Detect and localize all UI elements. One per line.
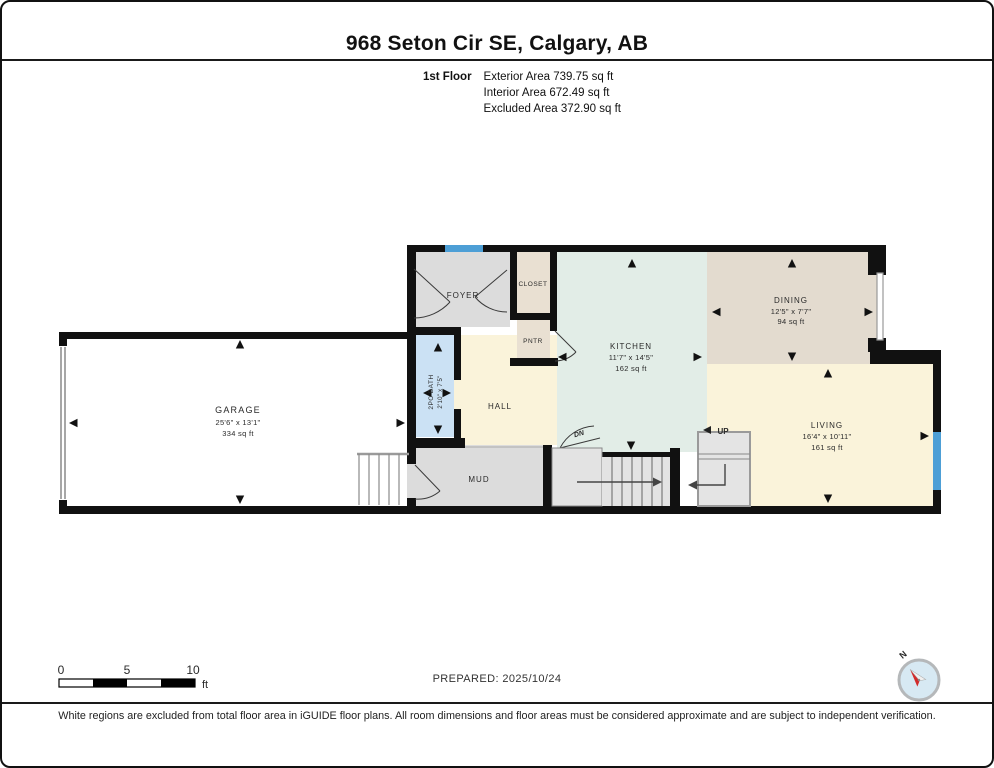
window-living <box>933 432 941 490</box>
floorplan-page: 968 Seton Cir SE, Calgary, AB 1st Floor … <box>0 0 994 768</box>
patio-door <box>877 273 883 340</box>
disclaimer-text: White regions are excluded from total fl… <box>2 710 992 722</box>
bath-door-opening <box>454 380 461 409</box>
room-living-label: LIVING <box>811 421 843 430</box>
room-kitchen-dims: 11'7" x 14'5" <box>609 353 654 362</box>
room-kitchen-label: KITCHEN <box>610 342 652 351</box>
prepared-date: PREPARED: 2025/10/24 <box>2 673 992 685</box>
floorplan-canvas: DN UP <box>2 2 994 768</box>
room-bath-dims: 2'10" x 7'5" <box>438 375 444 408</box>
compass-north-label: N <box>897 649 908 661</box>
room-foyer-label: FOYER <box>447 291 480 300</box>
garage-door <box>59 346 67 500</box>
room-kitchen-area: 162 sq ft <box>615 364 647 373</box>
window-foyer <box>445 245 483 252</box>
room-living-dims: 16'4" x 10'11" <box>803 432 852 441</box>
room-pantry-label: PNTR <box>523 338 543 345</box>
room-garage-dims: 25'6" x 13'1" <box>215 418 260 427</box>
room-garage-label: GARAGE <box>215 405 261 415</box>
stairs-up-label: UP <box>717 427 729 436</box>
room-dining-area: 94 sq ft <box>778 317 806 326</box>
stairs-up: UP <box>688 426 750 506</box>
footer-divider <box>2 702 992 704</box>
room-dining-dims: 12'5" x 7'7" <box>771 307 812 316</box>
room-living-area: 161 sq ft <box>811 443 843 452</box>
room-closet-label: CLOSET <box>518 281 547 288</box>
room-hall-label: HALL <box>488 402 512 411</box>
room-dining-label: DINING <box>774 296 808 305</box>
mud-door-opening <box>407 464 416 498</box>
room-garage-area: 334 sq ft <box>222 429 254 438</box>
room-fills <box>66 252 933 506</box>
room-mud-label: MUD <box>468 475 489 484</box>
room-bath-label: 2PC BATH <box>428 374 435 409</box>
